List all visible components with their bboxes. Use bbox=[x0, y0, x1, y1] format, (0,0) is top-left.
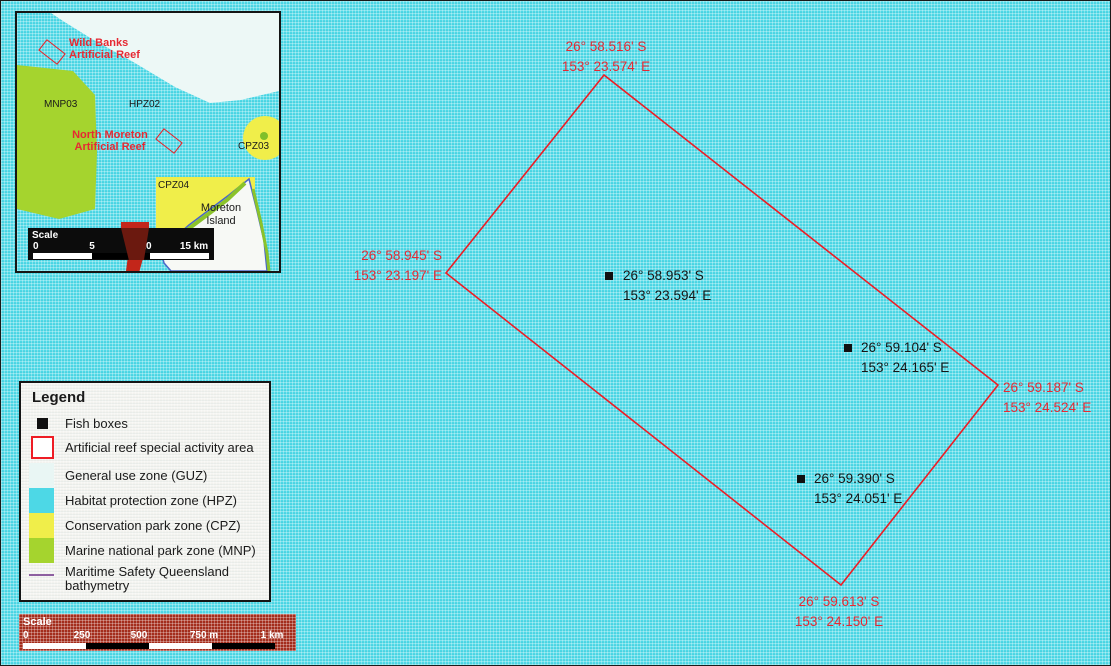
corner-coord-south-lon: 153° 24.150' E bbox=[774, 612, 904, 632]
fish-box-marker-2 bbox=[844, 344, 852, 352]
corner-coord-north-lon: 153° 23.574' E bbox=[531, 57, 681, 77]
corner-coord-north-lat: 26° 58.516' S bbox=[531, 37, 681, 57]
fish-box-marker-3 bbox=[797, 475, 805, 483]
marine-national-park-zone-swatch bbox=[29, 538, 54, 563]
corner-coord-north: 26° 58.516' S 153° 23.574' E bbox=[531, 37, 681, 77]
channel-patch-upper bbox=[121, 222, 149, 228]
legend-label-hpz: Habitat protection zone (HPZ) bbox=[65, 494, 237, 508]
wild-banks-label-line2: Artificial Reef bbox=[69, 49, 140, 61]
fish-box-marker-1 bbox=[605, 272, 613, 280]
main-scale-tick-0: 0 bbox=[23, 630, 29, 641]
corner-coord-east-lat: 26° 59.187' S bbox=[1003, 378, 1091, 398]
fish-box-coord-2: 26° 59.104' S 153° 24.165' E bbox=[861, 338, 949, 378]
general-use-zone-swatch bbox=[29, 463, 54, 488]
legend-row-mnp: Marine national park zone (MNP) bbox=[21, 538, 269, 563]
legend-label-bathymetry-line1: Maritime Safety Queensland bbox=[65, 565, 229, 579]
zone-label-cpz04: CPZ04 bbox=[158, 180, 189, 191]
main-scale-bar: Scale 0 250 500 750 m 1 km bbox=[19, 614, 296, 651]
corner-coord-south-lat: 26° 59.613' S bbox=[774, 592, 904, 612]
legend-label-guz: General use zone (GUZ) bbox=[65, 469, 207, 483]
legend-label-bathymetry: Maritime Safety Queensland bathymetry bbox=[65, 565, 229, 593]
legend-label-bathymetry-line2: bathymetry bbox=[65, 579, 229, 593]
legend-title: Legend bbox=[32, 389, 85, 406]
legend-row-fish-boxes: Fish boxes bbox=[21, 416, 269, 434]
legend-label-cpz: Conservation park zone (CPZ) bbox=[65, 519, 241, 533]
legend-row-bathymetry: Maritime Safety Queensland bathymetry bbox=[21, 565, 269, 595]
fish-box-coord-3-lat: 26° 59.390' S bbox=[814, 469, 902, 489]
inset-scale-tick-15km: 15 km bbox=[180, 241, 208, 252]
fish-box-coord-2-lon: 153° 24.165' E bbox=[861, 358, 949, 378]
fish-box-coord-2-lat: 26° 59.104' S bbox=[861, 338, 949, 358]
moreton-island-label-line2: Island bbox=[189, 215, 253, 228]
moreton-island-label: Moreton Island bbox=[189, 202, 253, 228]
legend-label-mnp: Marine national park zone (MNP) bbox=[65, 544, 256, 558]
inset-scale-segments bbox=[33, 253, 209, 259]
fish-box-coord-1: 26° 58.953' S 153° 23.594' E bbox=[623, 266, 711, 306]
bathymetry-line-swatch bbox=[29, 574, 54, 576]
main-scale-title: Scale bbox=[23, 616, 52, 628]
wild-banks-label-line1: Wild Banks bbox=[69, 37, 140, 49]
corner-coord-east-lon: 153° 24.524' E bbox=[1003, 398, 1091, 418]
legend-row-hpz: Habitat protection zone (HPZ) bbox=[21, 488, 269, 513]
legend-row-cpz: Conservation park zone (CPZ) bbox=[21, 513, 269, 538]
zone-label-cpz03: CPZ03 bbox=[238, 141, 269, 152]
artificial-reef-swatch bbox=[31, 436, 54, 459]
habitat-protection-zone-swatch bbox=[29, 488, 54, 513]
main-scale-tick-750m: 750 m bbox=[190, 630, 218, 641]
zone-label-hpz02: HPZ02 bbox=[129, 99, 160, 110]
legend: Legend Fish boxes Artificial reef specia… bbox=[19, 381, 271, 602]
north-moreton-label-line1: North Moreton bbox=[69, 129, 151, 141]
fish-boxes-swatch bbox=[37, 418, 48, 429]
legend-row-guz: General use zone (GUZ) bbox=[21, 463, 269, 488]
north-moreton-label: North Moreton Artificial Reef bbox=[69, 129, 151, 153]
legend-label-fish-boxes: Fish boxes bbox=[65, 417, 128, 431]
zone-label-mnp03: MNP03 bbox=[44, 99, 77, 110]
map-canvas: 26° 58.516' S 153° 23.574' E 26° 58.945'… bbox=[0, 0, 1111, 666]
cpz03-islet bbox=[260, 132, 268, 140]
corner-coord-west: 26° 58.945' S 153° 23.197' E bbox=[330, 246, 442, 286]
inset-scale-title: Scale bbox=[32, 230, 58, 241]
moreton-island-label-line1: Moreton bbox=[189, 202, 253, 215]
conservation-park-zone-swatch bbox=[29, 513, 54, 538]
corner-coord-east: 26° 59.187' S 153° 24.524' E bbox=[1003, 378, 1091, 418]
legend-row-reef-area: Artificial reef special activity area bbox=[21, 436, 269, 460]
fish-box-coord-1-lat: 26° 58.953' S bbox=[623, 266, 711, 286]
inset-scale-bar: Scale 0 5 10 15 km bbox=[28, 228, 214, 260]
main-scale-segments bbox=[23, 643, 275, 649]
corner-coord-west-lat: 26° 58.945' S bbox=[330, 246, 442, 266]
artificial-reef-boundary bbox=[446, 75, 998, 585]
north-moreton-label-line2: Artificial Reef bbox=[69, 141, 151, 153]
fish-box-coord-1-lon: 153° 23.594' E bbox=[623, 286, 711, 306]
corner-coord-west-lon: 153° 23.197' E bbox=[330, 266, 442, 286]
inset-overview-map: Wild Banks Artificial Reef North Moreton… bbox=[15, 11, 281, 273]
main-scale-tick-1km: 1 km bbox=[261, 630, 284, 641]
inset-scale-tick-0: 0 bbox=[33, 241, 39, 252]
corner-coord-south: 26° 59.613' S 153° 24.150' E bbox=[774, 592, 904, 632]
main-scale-tick-250: 250 bbox=[74, 630, 91, 641]
fish-box-coord-3-lon: 153° 24.051' E bbox=[814, 489, 902, 509]
inset-scale-tick-5: 5 bbox=[89, 241, 95, 252]
main-scale-tick-500: 500 bbox=[131, 630, 148, 641]
wild-banks-label: Wild Banks Artificial Reef bbox=[69, 37, 140, 61]
fish-box-coord-3: 26° 59.390' S 153° 24.051' E bbox=[814, 469, 902, 509]
legend-label-reef-area: Artificial reef special activity area bbox=[65, 441, 254, 455]
